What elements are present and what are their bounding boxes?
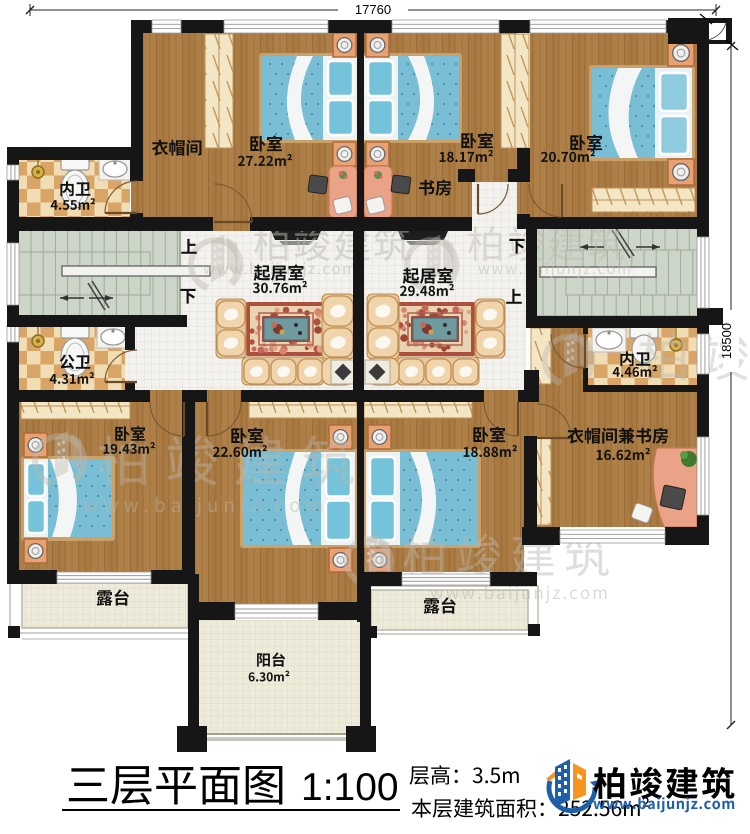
svg-text:17760: 17760 xyxy=(355,2,391,17)
svg-text:18500: 18500 xyxy=(719,323,734,359)
svg-text:1:100: 1:100 xyxy=(301,766,399,809)
